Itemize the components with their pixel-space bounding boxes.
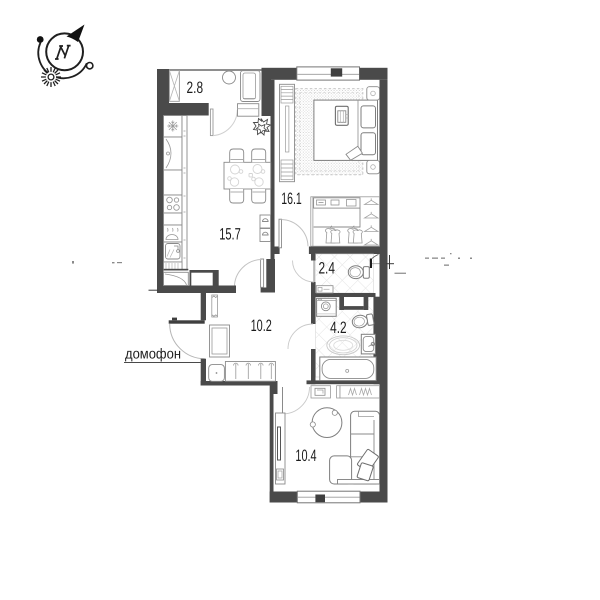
svg-text:2.8: 2.8 <box>187 79 204 97</box>
svg-text:16.1: 16.1 <box>281 190 302 208</box>
svg-text:10.4: 10.4 <box>295 447 316 465</box>
svg-text:4.2: 4.2 <box>330 319 347 337</box>
svg-text:2.4: 2.4 <box>318 260 335 278</box>
svg-text:15.7: 15.7 <box>219 226 241 244</box>
svg-text:домофон: домофон <box>125 347 181 363</box>
svg-text:10.2: 10.2 <box>251 317 272 335</box>
